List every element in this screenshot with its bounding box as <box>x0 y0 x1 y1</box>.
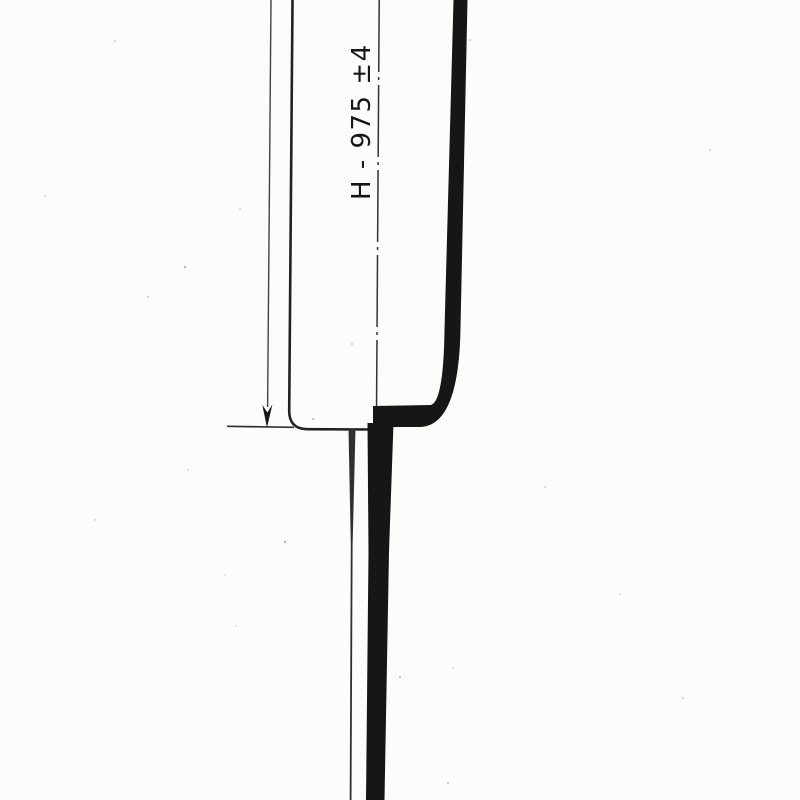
extension-line <box>227 426 294 427</box>
dimension-arrowhead <box>262 405 272 428</box>
section-wall-upper <box>373 0 468 427</box>
scanned-drawing-page: H - 975 ±4 <box>0 0 800 800</box>
dimension-H: H - 975 ±4 <box>227 0 377 428</box>
inner-wall-line <box>349 429 356 800</box>
drawing-canvas: H - 975 ±4 <box>0 0 800 800</box>
dimension-line <box>268 0 271 407</box>
dimension-label: H - 975 ±4 <box>347 43 377 200</box>
section-wall-lower <box>366 423 394 800</box>
